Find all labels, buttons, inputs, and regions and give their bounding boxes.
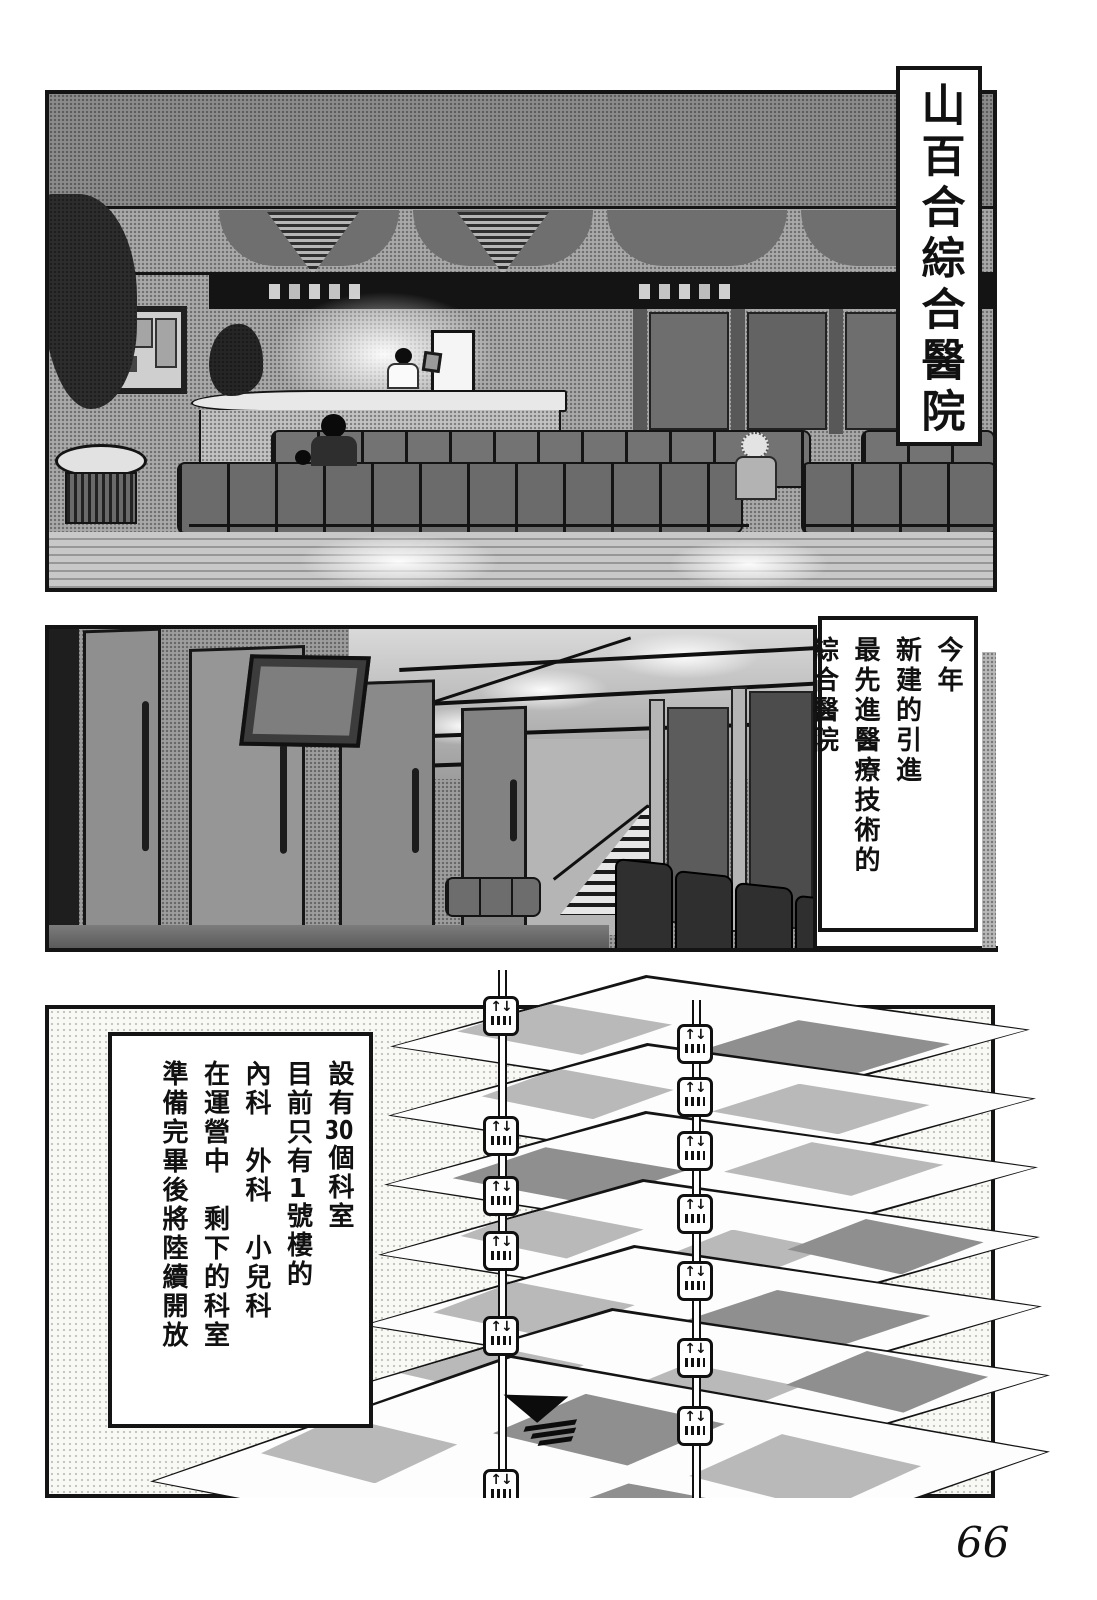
elevator-icon: ↑↓ — [483, 1231, 519, 1271]
floor-glow — [669, 539, 829, 589]
window-panel — [747, 312, 827, 430]
floor-glow — [299, 534, 499, 589]
reception-counter-top — [191, 390, 567, 412]
caption2-line: 新建的引進 — [890, 636, 923, 920]
bench-front-seat — [735, 882, 793, 952]
foliage — [45, 194, 137, 409]
caption3-line: 目前只有1號樓的 — [281, 1060, 314, 1414]
department-count: 30 — [324, 1118, 354, 1144]
elevator-icon: ↑↓ — [677, 1406, 713, 1446]
elevator-icon: ↑↓ — [677, 1131, 713, 1171]
window-panel — [649, 312, 729, 430]
caption3-text: 設有30個科室 目前只有1號樓的 內科 外科 小兒科 在運營中 剩下的科室 準備… — [148, 1060, 356, 1414]
patient-head-small — [295, 450, 311, 465]
sign-glyphs — [639, 284, 730, 299]
pillar — [633, 309, 647, 434]
elevator-icon: ↑↓ — [483, 996, 519, 1036]
corridor-floor — [49, 925, 609, 952]
elevator-icon: ↑↓ — [677, 1338, 713, 1378]
potted-plant — [209, 324, 263, 396]
caption2-line: 最先進醫療技術的 — [849, 636, 882, 920]
caption3-line: 內科 外科 小兒科 — [240, 1060, 273, 1414]
near-door-dark — [49, 629, 79, 952]
elevator-icon: ↑↓ — [483, 1469, 519, 1498]
ceiling-glow — [479, 669, 609, 711]
patient-shoulders — [311, 436, 357, 466]
patient-head — [321, 414, 346, 438]
lobby-floor — [49, 532, 993, 592]
caption2-line: 綜合醫院 — [807, 636, 840, 920]
elderly-head — [741, 432, 769, 459]
elevator-icon: ↑↓ — [483, 1176, 519, 1216]
caption3-line: 準備完畢後將陸續開放 — [157, 1060, 190, 1414]
reception-monitor — [422, 351, 443, 373]
elevator-icon: ↑↓ — [483, 1316, 519, 1356]
panel2-border-extension — [817, 946, 998, 952]
round-planter-base — [65, 472, 137, 524]
caption-box-title: 山百合綜合醫院 — [896, 66, 982, 446]
caption3-line: 設有30個科室 — [323, 1060, 356, 1414]
elevator-icon: ↑↓ — [677, 1024, 713, 1064]
elevator-icon: ↑↓ — [677, 1194, 713, 1234]
elevator-icon: ↑↓ — [677, 1261, 713, 1301]
wall-tv — [239, 654, 371, 747]
bench-front-seat — [615, 858, 673, 952]
receptionist-head — [395, 348, 412, 364]
caption3-line: 在運營中 剩下的科室 — [198, 1060, 231, 1414]
lobby-ceiling — [49, 94, 993, 206]
caption2-text: 今年 新建的引進 最先進醫療技術的 綜合醫院 — [798, 636, 964, 920]
receptionist-body — [387, 363, 419, 389]
bench-mid — [445, 877, 541, 917]
panel-lobby — [45, 90, 997, 592]
panel-corridor — [45, 625, 817, 952]
page-number: 66 — [956, 1518, 1009, 1567]
hospital-title-text: 山百合綜合醫院 — [912, 82, 967, 442]
pillar — [829, 309, 843, 434]
elevator-icon: ↑↓ — [677, 1077, 713, 1117]
direction-arrow — [503, 1383, 582, 1450]
caption2-line: 今年 — [932, 636, 965, 920]
chair-rail — [189, 524, 749, 527]
manga-page: 山百合綜合醫院 — [0, 0, 1097, 1600]
elderly-body — [735, 456, 777, 500]
building-number: 1 — [283, 1176, 313, 1202]
caption2-side-strip — [982, 652, 996, 948]
caption-box-corridor: 今年 新建的引進 最先進醫療技術的 綜合醫院 — [818, 616, 978, 932]
bench-front-seat — [675, 870, 733, 952]
caption-box-floorplan: 設有30個科室 目前只有1號樓的 內科 外科 小兒科 在運營中 剩下的科室 準備… — [108, 1032, 373, 1428]
ceiling-edge-line — [49, 206, 993, 209]
mezzanine-arch — [607, 210, 787, 266]
chair-rail — [804, 524, 997, 527]
sliding-door — [83, 628, 161, 952]
pillar — [731, 309, 745, 434]
elevator-icon: ↑↓ — [483, 1116, 519, 1156]
